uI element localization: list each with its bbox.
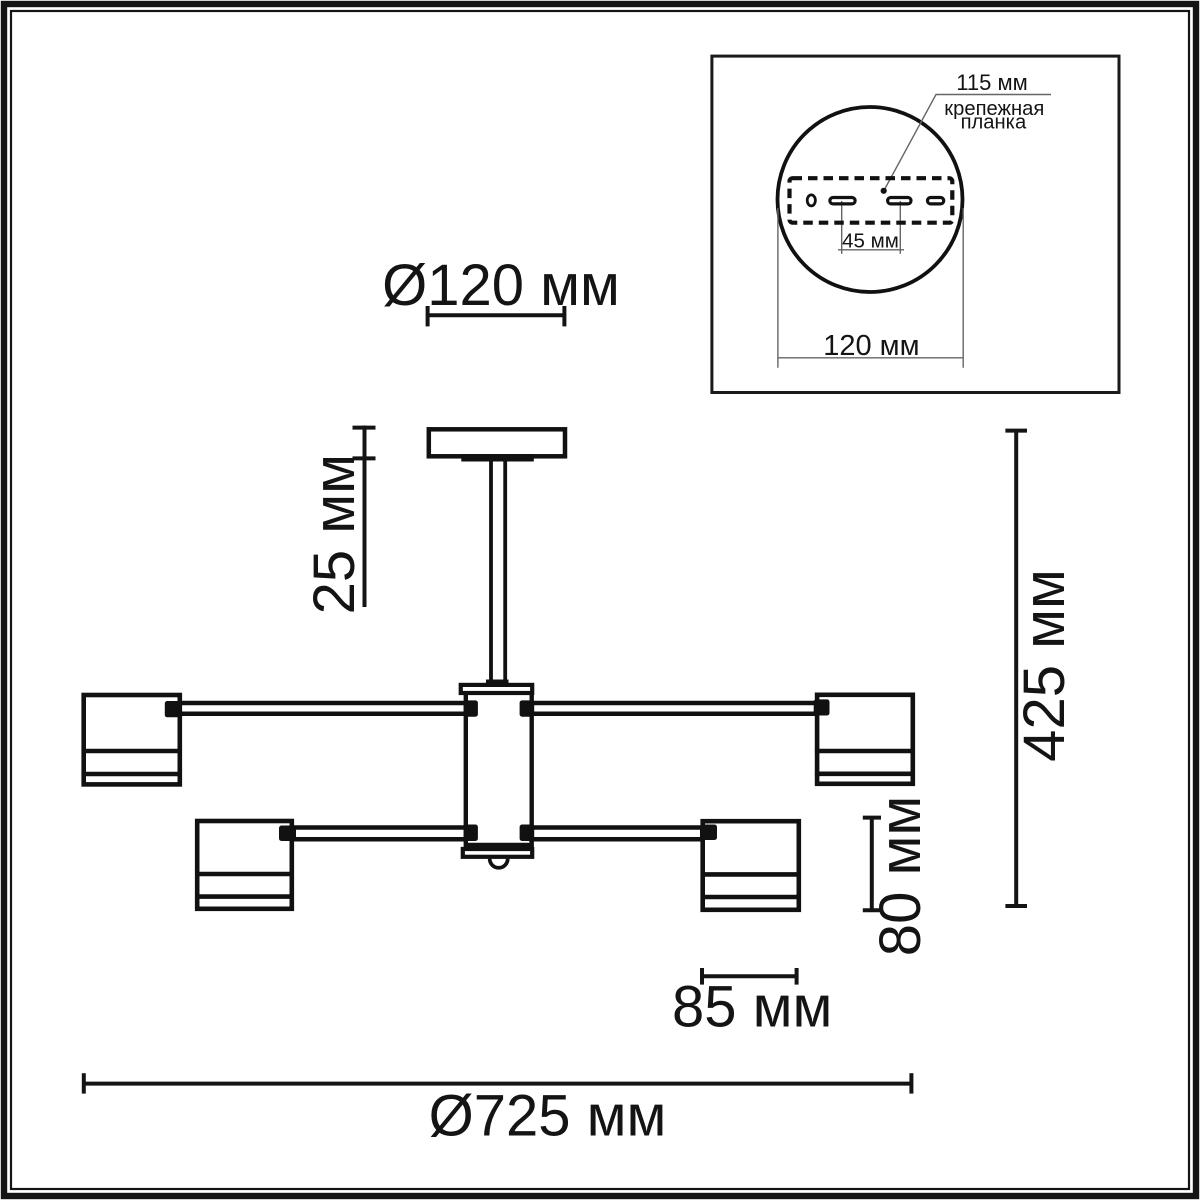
- svg-text:планка: планка: [961, 112, 1027, 134]
- svg-text:45 мм: 45 мм: [842, 230, 899, 253]
- svg-text:85 мм: 85 мм: [672, 975, 832, 1040]
- svg-text:120 мм: 120 мм: [823, 330, 919, 362]
- svg-text:425 мм: 425 мм: [1012, 569, 1077, 762]
- svg-text:80 мм: 80 мм: [868, 796, 933, 956]
- svg-text:Ø725 мм: Ø725 мм: [429, 1083, 667, 1148]
- svg-text:25 мм: 25 мм: [302, 454, 367, 614]
- svg-text:Ø120 мм: Ø120 мм: [382, 253, 620, 318]
- svg-text:115 мм: 115 мм: [956, 70, 1027, 95]
